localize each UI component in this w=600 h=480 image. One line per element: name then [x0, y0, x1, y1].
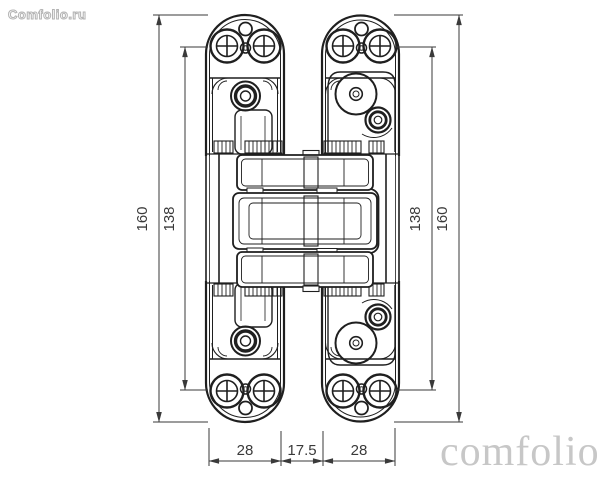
dimension-label-width-center-gap: 17.5: [287, 442, 316, 459]
center-linkage: [233, 151, 379, 292]
dimension-label-width-left-leaf: 28: [237, 442, 254, 459]
hinge-leaves-top: [206, 15, 399, 156]
dimension-label-height-right-outer: 160: [434, 206, 451, 231]
dimension-label-height-right-inner: 138: [407, 206, 424, 231]
hinge-leaves-bottom: [206, 281, 399, 422]
hinge-technical-drawing: 160 138 138 160 28 17.5 28: [0, 0, 600, 480]
drawing-canvas: Comfolio.ru: [0, 0, 600, 480]
dimension-label-width-right-leaf: 28: [351, 442, 368, 459]
watermark-bottom-right: comfolio: [440, 428, 600, 476]
dimension-label-height-left-outer: 160: [134, 206, 151, 231]
dimension-label-height-left-inner: 138: [161, 206, 178, 231]
